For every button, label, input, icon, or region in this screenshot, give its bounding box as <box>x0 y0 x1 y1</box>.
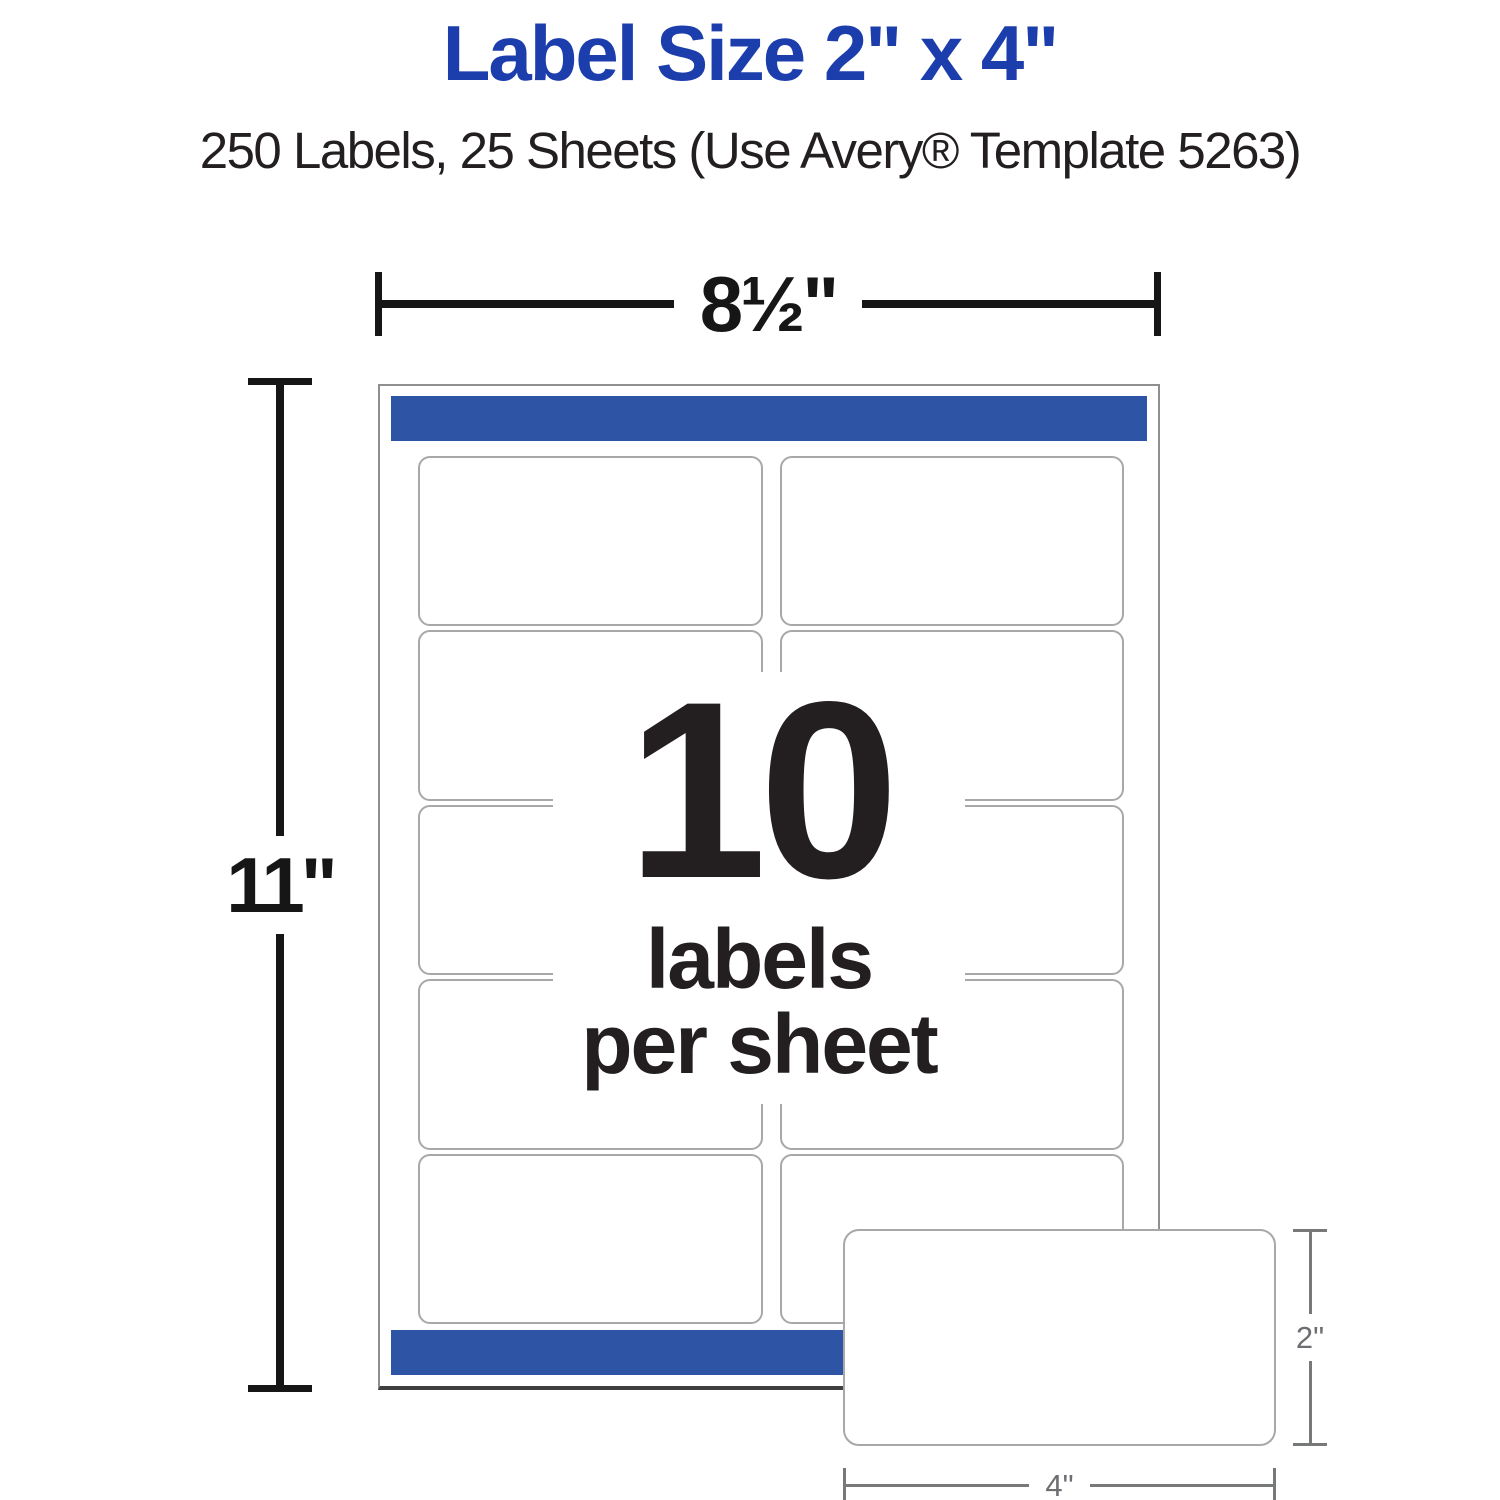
labels-count: 10 <box>627 688 891 895</box>
dimension-line-left <box>382 300 674 308</box>
sheet-height-dimension: 11" <box>248 378 312 1392</box>
dimension-endcap-bottom <box>248 1385 312 1392</box>
labels-word: labels <box>646 917 872 1003</box>
dimension-line-top <box>276 385 284 836</box>
dimension-line-top <box>1309 1232 1312 1314</box>
label-height-dimension-label: 2" <box>1296 1314 1324 1361</box>
sheet-width-dimension: 8½" <box>375 272 1161 336</box>
dimension-line-right <box>862 300 1154 308</box>
dimension-endcap-left <box>375 272 382 336</box>
dimension-line-left <box>846 1484 1029 1487</box>
label-height-dimension: 2" <box>1293 1229 1327 1446</box>
single-label-diagram <box>843 1229 1276 1446</box>
dimension-line-right <box>1090 1484 1273 1487</box>
dimension-line-bottom <box>276 934 284 1385</box>
dimension-line-bottom <box>1309 1361 1312 1443</box>
sheet-top-blue-bar <box>391 396 1147 441</box>
sheet-label-cell <box>780 456 1125 626</box>
dimension-endcap-bottom <box>1293 1443 1327 1446</box>
page-title: Label Size 2" x 4" <box>0 8 1500 99</box>
dimension-endcap-right <box>1154 272 1161 336</box>
label-width-dimension-label: 4" <box>1029 1470 1089 1500</box>
sheet-width-dimension-label: 8½" <box>674 265 862 343</box>
product-diagram: Label Size 2" x 4" 250 Labels, 25 Sheets… <box>0 0 1500 1500</box>
dimension-endcap-top <box>248 378 312 385</box>
labels-per-sheet-caption: 10 labels per sheet <box>553 672 965 1104</box>
sheet-label-cell <box>418 1154 763 1324</box>
dimension-endcap-right <box>1273 1468 1276 1500</box>
label-width-dimension: 4" <box>843 1468 1276 1500</box>
sheet-label-cell <box>418 456 763 626</box>
sheet-height-dimension-label: 11" <box>226 836 333 934</box>
page-subtitle: 250 Labels, 25 Sheets (Use Avery® Templa… <box>0 121 1500 180</box>
per-sheet-word: per sheet <box>581 1002 937 1088</box>
